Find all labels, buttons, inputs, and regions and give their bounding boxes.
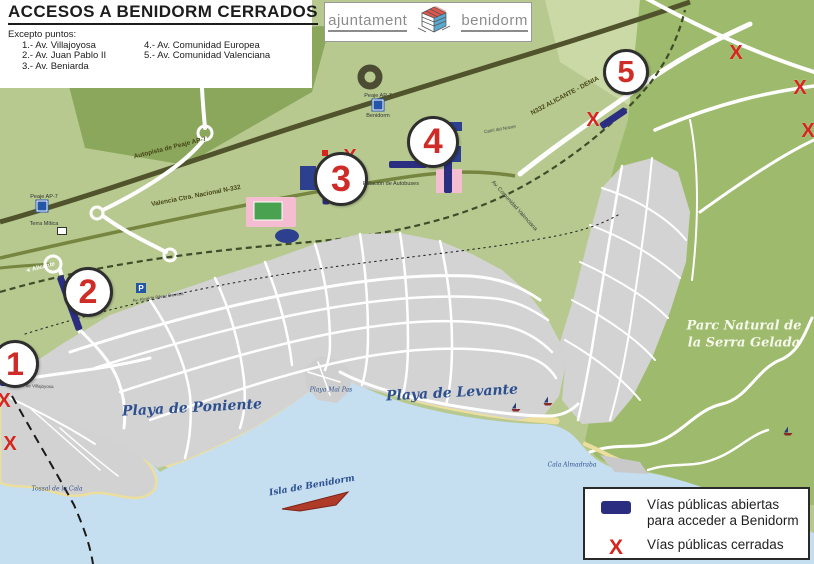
map-label-tossal-de-la-cala: Tossal de la Cala [31,486,82,493]
open-road-segment-6 [599,106,628,129]
open-road-label: Vías públicas abiertas para acceder a Be… [647,497,799,530]
map-label-peaje-ap7-benidorm: Peaje AP-7 [364,93,392,99]
closed-road-label: Vías públicas cerradas [647,537,784,553]
benidorm-access-map: XXXXXXX12345Playa de PonientePlaya de Le… [0,0,814,564]
access-point-3: 3 [314,152,368,206]
access-point-1: 1 [0,340,39,388]
map-key: Vías públicas abiertas para acceder a Be… [583,487,810,560]
closed-road-x-icon: X [601,537,631,558]
map-label-alicante-sign: ◄ Alicante [24,261,55,274]
map-label-estacion-autobuses: Estación de Autobuses [363,181,419,187]
map-label-parc-natural-2: la Serra Gelada [688,336,800,351]
map-label-playa-mal-pas: Playa Mal Pas [310,387,352,394]
ajuntament-benidorm-logo: ajuntament benidorm [324,2,532,42]
map-label-peaje-ap7-terra: Peaje AP-7 [30,194,58,200]
toll-terra-mitica-icon [37,201,48,212]
map-label-av-villajoyosa-road: Av. de Villajoyosa [18,383,53,389]
key-closed-roads-row: X Vías públicas cerradas [599,537,808,558]
title-block: ACCESOS A BENIDORM CERRADOS Excepto punt… [8,2,338,73]
boat-icon-1 [510,399,523,417]
map-label-terra-mitica: Terra Mítica [30,221,59,227]
closed-road-x-mark-7: X [3,434,16,454]
access-point-5: 5 [603,49,649,95]
map-label-playa-poniente: Playa de Poniente [122,396,263,419]
map-label-cala-almadraba: Cala Almadraba [548,462,597,469]
boat-icon-2 [542,393,555,411]
closed-road-x-mark-4: X [793,78,806,98]
map-label-av-comunidad-valenciana: Av. Comunidad Valenciana [490,180,538,233]
tram-station-icon [57,227,67,235]
map-label-playa-levante: Playa de Levante [386,382,519,405]
access-point-4: 4 [407,116,459,168]
map-label-peaje-benidorm-2: Benidorm [366,113,390,119]
closed-road-x-mark-3: X [729,43,742,63]
building-logo-icon [413,4,455,41]
map-label-parc-natural-1: Parc Natural de [686,319,801,334]
map-label-isla-benidorm: Isla de Benidorm [268,474,355,499]
closed-road-x-mark-6: X [0,391,11,411]
toll-benidorm-icon [373,100,384,111]
logo-ajuntament-text: ajuntament [328,13,407,32]
page-title: ACCESOS A BENIDORM CERRADOS [8,2,318,25]
parking-icon: P [136,283,146,293]
exception-item-5: 5.- Av. Comunidad Valenciana [144,51,270,62]
closed-road-x-mark-2: X [586,110,599,130]
map-label-nacional-n332: Valencia Ctra. Nacional N-332 [151,184,242,208]
map-label-cami-del-notxer: Camí del Notxer [484,124,517,135]
map-label-autopista-ap7: Autopista de Peaje AP-7 [133,136,207,161]
logo-benidorm-text: benidorm [461,13,528,32]
boat-icon-3 [782,423,795,441]
closed-road-x-mark-5: X [801,121,814,141]
exception-item-3: 3.- Av. Beniarda [22,62,140,73]
access-point-2: 2 [63,267,113,317]
open-road-swatch [601,501,631,514]
key-open-roads-row: Vías públicas abiertas para acceder a Be… [599,497,808,530]
exceptions-list: Excepto puntos: 1.- Av. Villajoyosa 2.- … [8,30,338,73]
